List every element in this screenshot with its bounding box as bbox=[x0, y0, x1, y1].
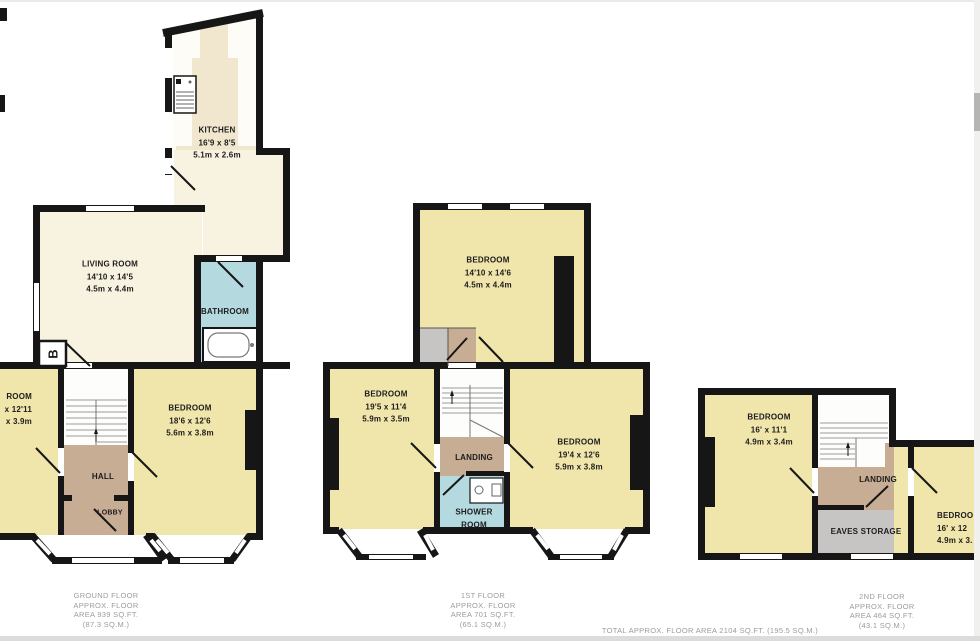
window bbox=[164, 48, 173, 78]
first-floor-caption: 1ST FLOOR APPROX. FLOOR AREA 701 SQ.FT. … bbox=[450, 591, 515, 629]
window bbox=[86, 206, 134, 211]
bay-window bbox=[560, 555, 602, 559]
door-gap bbox=[504, 444, 510, 472]
bedroom-left-label-second: BEDROOM 16' x 11'1 4.9m x 3.4m bbox=[745, 411, 793, 449]
bedroom-right-label-first: BEDROOM 19'4 x 12'6 5.9m x 3.8m bbox=[555, 436, 603, 474]
living-room-label: LIVING ROOM 14'10 x 14'5 4.5m x 4.4m bbox=[82, 258, 138, 296]
lobby-label: LOBBY bbox=[97, 509, 123, 518]
stairwell bbox=[818, 395, 890, 467]
ground-floor-plan bbox=[0, 13, 290, 564]
landing-label-second: LANDING bbox=[859, 474, 897, 487]
window bbox=[740, 554, 782, 559]
bedroom-left-label-first: BEDROOM 19'5 x 11'4 5.9m x 3.5m bbox=[362, 388, 410, 426]
door-gap bbox=[128, 453, 134, 481]
boiler-label: B bbox=[46, 349, 61, 358]
edge-mark bbox=[0, 8, 7, 21]
eaves-storage-label: EAVES STORAGE bbox=[831, 526, 902, 539]
bay-window bbox=[369, 555, 413, 559]
hall-room bbox=[62, 445, 130, 535]
bay-window bbox=[180, 558, 224, 563]
window bbox=[510, 204, 544, 209]
bathroom-label: BATHROOM bbox=[201, 306, 249, 319]
chimney-breast bbox=[330, 418, 339, 490]
shower-room-label: SHOWER ROOM bbox=[455, 507, 492, 532]
door-gap bbox=[908, 468, 914, 496]
floorplan-graphics bbox=[0, 0, 980, 641]
corridor2 bbox=[203, 205, 286, 257]
bedroom-right-label-second: BEDROO 16' x 12 4.9m x 3. bbox=[937, 510, 980, 548]
bay-window bbox=[72, 558, 134, 563]
window bbox=[34, 283, 39, 331]
total-floor-area: TOTAL APPROX. FLOOR AREA 2104 SQ.FT. (19… bbox=[602, 626, 818, 635]
floorplan-image: KITCHEN 16'9 x 8'5 5.1m x 2.6m LIVING RO… bbox=[0, 0, 980, 641]
window bbox=[448, 204, 482, 209]
window bbox=[851, 554, 893, 559]
passage bbox=[448, 328, 476, 366]
bedroom-right-label-ground: BEDROOM 18'6 x 12'6 5.6m x 3.8m bbox=[166, 402, 214, 440]
bedroom-right-room bbox=[131, 367, 260, 535]
second-floor-caption: 2ND FLOOR APPROX. FLOOR AREA 464 SQ.FT. … bbox=[849, 592, 914, 630]
landing-label-first: LANDING bbox=[455, 452, 493, 465]
bedroom-top-label-first: BEDROOM 14'10 x 14'6 4.5m x 4.4m bbox=[464, 254, 512, 292]
hall-label: HALL bbox=[92, 471, 114, 484]
window bbox=[164, 112, 173, 148]
vestibule bbox=[420, 328, 448, 366]
door-gap bbox=[216, 256, 242, 261]
door-gap bbox=[448, 363, 476, 368]
kitchen-label: KITCHEN 16'9 x 8'5 5.1m x 2.6m bbox=[193, 124, 241, 162]
chimney-breast bbox=[705, 437, 715, 507]
chimney-breast bbox=[554, 256, 574, 366]
chimney-breast bbox=[245, 410, 256, 470]
chimney-breast bbox=[630, 415, 643, 490]
edge-mark bbox=[0, 95, 5, 112]
stairwell bbox=[440, 367, 504, 437]
ground-floor-caption: GROUND FLOOR APPROX. FLOOR AREA 939 SQ.F… bbox=[73, 591, 138, 629]
first-fixtures bbox=[470, 478, 503, 503]
ground-rooms bbox=[0, 16, 286, 535]
bedroom-left-label-ground: ROOM x 12'11 x 3.9m bbox=[0, 391, 32, 429]
